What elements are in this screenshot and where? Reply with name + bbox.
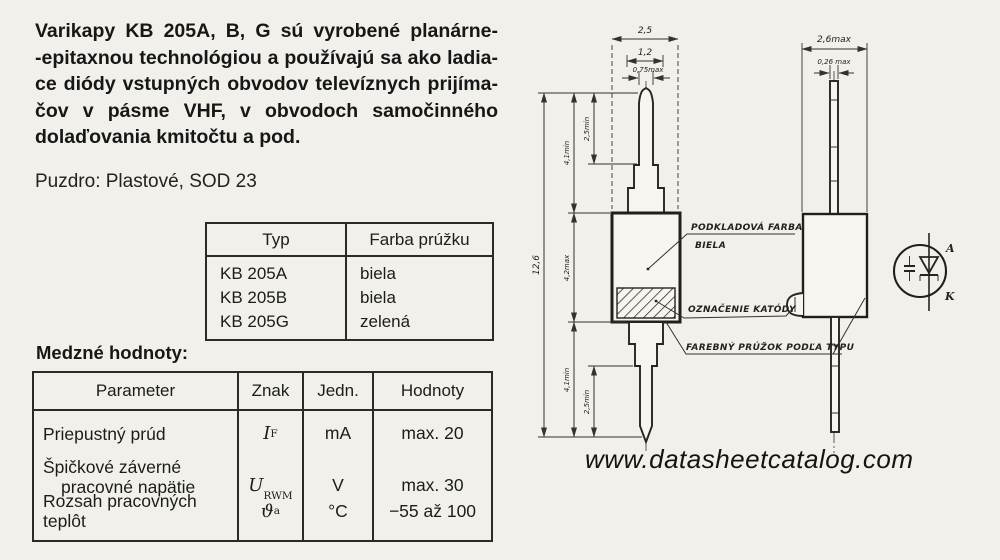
symbol-main: U [248,475,263,496]
limits-title: Medzné hodnoty: [36,342,188,364]
value-cell: −55 až 100 [374,498,491,524]
dim-lead-label: 0,75max [633,66,665,74]
symbol-main: I [263,423,270,444]
dim-width-label: 2,5 [638,26,653,36]
limits-header-parameter: Parameter [34,373,239,411]
bottom-lead [629,322,663,442]
spacer [374,524,491,540]
cathode-label: K [944,290,955,303]
param-line: Priepustný prúd [43,424,237,444]
spacer [347,334,492,339]
unit-cell: °C [304,498,374,524]
limits-table: Parameter Znak Jedn. Hodnoty Priepustný … [32,371,493,542]
intro-line: -epitaxnou technológiou a používajú sa a… [35,45,498,72]
cathode-mark-label: OZNAČENIE KATÓDY [688,303,797,315]
limits-header-hodnoty: Hodnoty [374,373,491,411]
bottom-lead [831,317,839,432]
dim-bottom-lead-label: 4,1min [563,368,571,392]
unit-cell: mA [304,411,374,456]
spacer [207,334,347,339]
watermark-url: www.datasheetcatalog.com [585,444,914,475]
package-line: Puzdro: Plastové, SOD 23 [35,171,257,193]
param-cell: Rozsah pracovných teplôt [34,498,239,524]
colour-cell: zelená [347,310,492,334]
type-cell: KB 205A [207,262,347,286]
colour-cell: biela [347,286,492,310]
top-lead [628,88,664,213]
limits-header-jedn: Jedn. [304,373,374,411]
intro-line: dolaďovania kmitočtu a pod. [35,124,498,151]
spacer [304,524,374,540]
unit-cell: V [304,456,374,498]
spacer [239,524,304,540]
dim-side-width-label: 2,6max [817,35,852,45]
symbol-cell: IF [239,411,304,456]
intro-line: čov v pásme VHF, v obvodoch samočinného [35,98,498,125]
symbol-cell: ϑa [239,498,304,524]
param-line: Špičkové záverné [43,457,237,477]
colour-cell: biela [347,262,492,286]
dim-top-lead-label: 4,1min [563,141,571,165]
base-colour-label-2: BIELA [695,241,726,251]
varicap-symbol: A K [894,233,955,311]
dim-body-label: 4,2max [563,254,571,281]
type-cell: KB 205B [207,286,347,310]
package-drawing: 2,5 1,2 0,75max 12,6 4,1min 2,5min [530,5,1000,500]
limits-header-znak: Znak [239,373,304,411]
side-view-drawing: 2,6max 0,26 max [787,35,867,453]
datasheet-page: Varikapy KB 205A, B, G sú vyrobené planá… [0,0,1000,560]
dim-top-inner-label: 2,5min [583,117,591,141]
symbol-main: ϑ [261,501,274,522]
dim-step-label: 1,2 [638,48,653,58]
dim-total-label: 12,6 [532,255,542,275]
type-table-header-typ: Typ [207,224,347,257]
anode-label: A [945,242,955,255]
front-view-drawing: 2,5 1,2 0,75max 12,6 4,1min 2,5min [532,26,680,451]
symbol-circle [894,245,946,297]
spacer [34,524,239,540]
dim-side-lead-label: 0,26 max [817,58,851,66]
type-cell: KB 205G [207,310,347,334]
param-cell: Priepustný prúd [34,411,239,456]
symbol-cell: URWM [239,456,304,498]
value-cell: max. 30 [374,456,491,498]
intro-line: ce diódy vstupných obvodov televíznych p… [35,71,498,98]
colour-stripe-band [617,288,675,318]
dim-bottom-inner-label: 2,5min [583,390,591,414]
type-table: Typ Farba prúžku KB 205A biela KB 205B b… [205,222,494,341]
value-cell: max. 20 [374,411,491,456]
stripe-label: FAREBNÝ PRÚŽOK PODĽA TYPU [686,341,855,353]
intro-line: Varikapy KB 205A, B, G sú vyrobené planá… [35,18,498,45]
type-table-header-farba: Farba prúžku [347,224,492,257]
base-colour-label: PODKLADOVÁ FARBA [691,221,803,233]
package-body-side [803,214,867,317]
intro-paragraph: Varikapy KB 205A, B, G sú vyrobené planá… [35,18,498,151]
